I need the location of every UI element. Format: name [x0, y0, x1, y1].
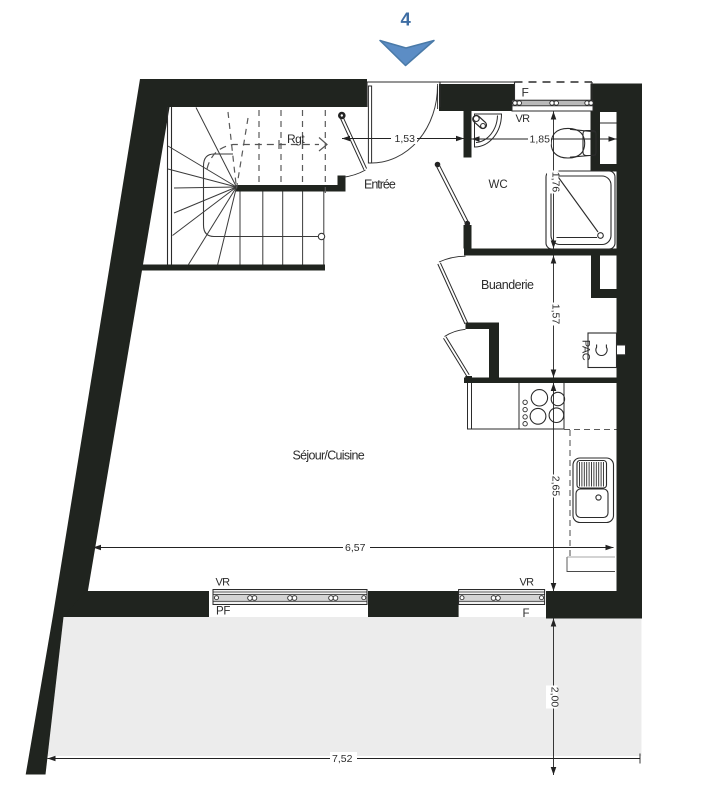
svg-text:VR: VR: [216, 577, 231, 589]
svg-text:Buanderie: Buanderie: [481, 278, 534, 292]
svg-text:7,52: 7,52: [332, 753, 353, 765]
svg-text:PAC: PAC: [580, 340, 592, 361]
svg-text:Entrée: Entrée: [364, 178, 396, 192]
svg-text:2,00: 2,00: [549, 687, 561, 708]
svg-text:6,57: 6,57: [345, 542, 366, 554]
svg-text:1,85: 1,85: [530, 134, 551, 146]
svg-text:Rgt: Rgt: [287, 132, 305, 146]
svg-text:1,76: 1,76: [550, 172, 562, 193]
svg-text:1,53: 1,53: [395, 133, 416, 145]
svg-text:VR: VR: [516, 113, 531, 125]
svg-text:Séjour/Cuisine: Séjour/Cuisine: [293, 449, 365, 463]
svg-text:WC: WC: [489, 179, 508, 191]
svg-text:VR: VR: [520, 577, 535, 589]
svg-text:PF: PF: [216, 606, 230, 618]
svg-text:F: F: [522, 86, 529, 100]
svg-text:4: 4: [401, 9, 412, 30]
svg-text:2,65: 2,65: [550, 476, 562, 497]
svg-text:F: F: [523, 608, 530, 620]
svg-text:1,57: 1,57: [550, 304, 562, 325]
